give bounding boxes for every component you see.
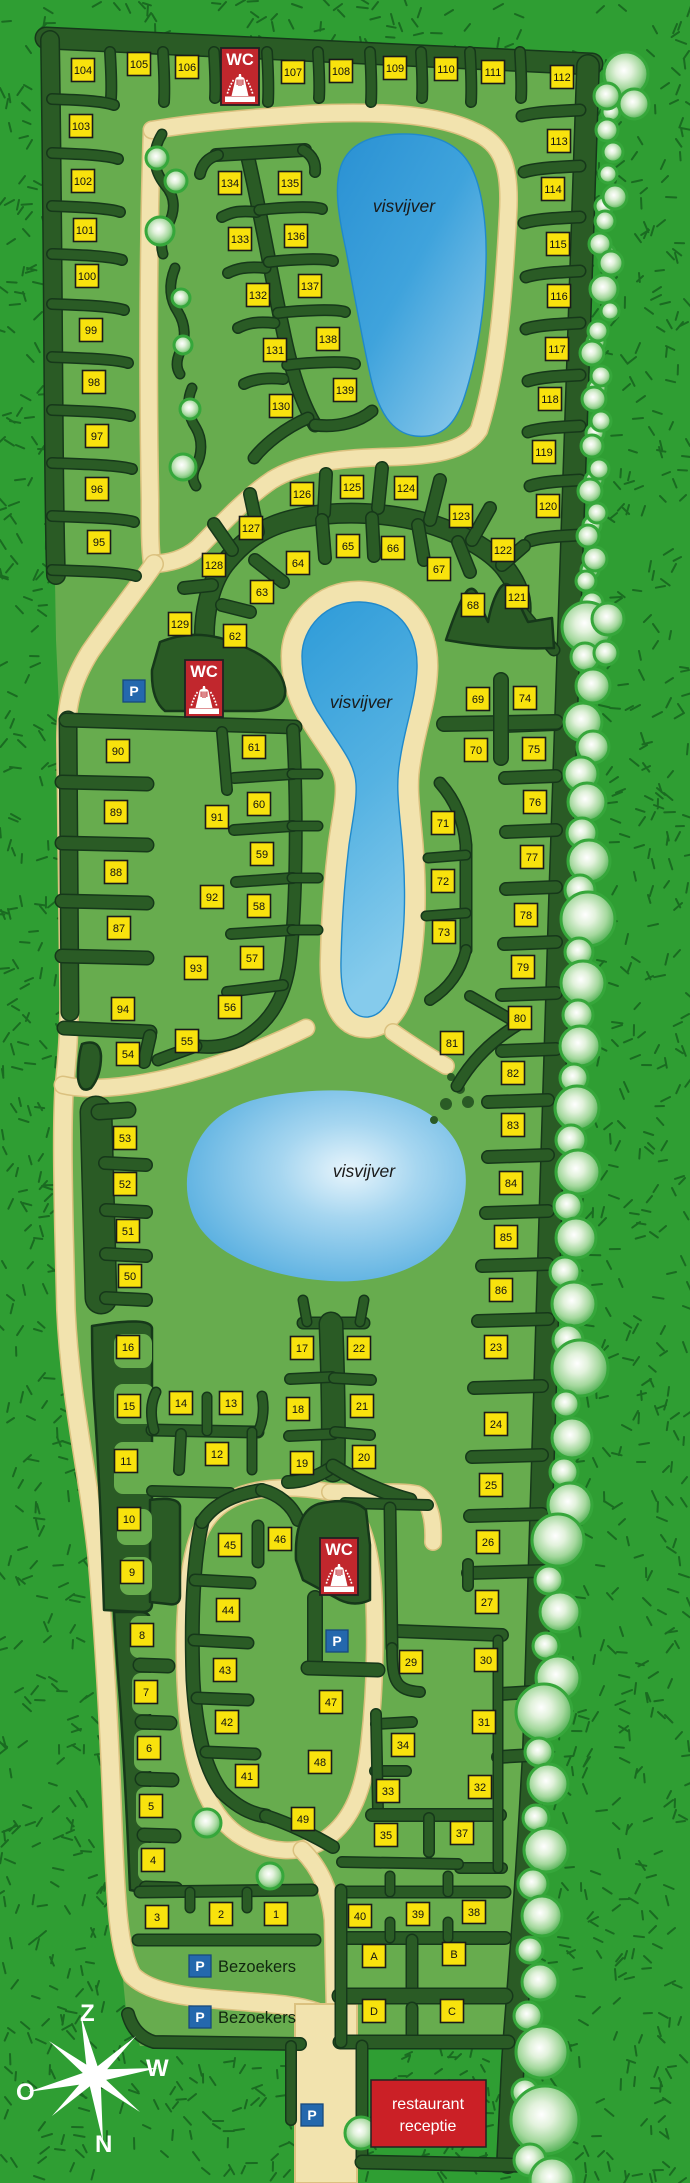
svg-text:80: 80 xyxy=(514,1013,526,1025)
svg-text:122: 122 xyxy=(494,545,512,557)
svg-text:46: 46 xyxy=(274,1534,286,1546)
svg-text:19: 19 xyxy=(296,1458,308,1470)
svg-text:130: 130 xyxy=(272,401,290,413)
svg-text:30: 30 xyxy=(480,1655,492,1667)
svg-text:59: 59 xyxy=(256,849,268,861)
svg-text:95: 95 xyxy=(93,537,105,549)
svg-text:45: 45 xyxy=(224,1540,236,1552)
svg-text:N: N xyxy=(95,2131,112,2158)
svg-text:44: 44 xyxy=(222,1605,234,1617)
svg-text:118: 118 xyxy=(541,394,559,406)
svg-text:94: 94 xyxy=(117,1004,129,1016)
svg-text:31: 31 xyxy=(478,1717,490,1729)
svg-text:90: 90 xyxy=(112,746,124,758)
svg-text:79: 79 xyxy=(517,962,529,974)
svg-text:11: 11 xyxy=(120,1456,131,1468)
svg-text:29: 29 xyxy=(405,1657,417,1669)
svg-text:5: 5 xyxy=(148,1801,154,1813)
svg-text:125: 125 xyxy=(343,482,361,494)
svg-text:138: 138 xyxy=(319,334,337,346)
svg-text:WC: WC xyxy=(325,1541,353,1559)
svg-text:87: 87 xyxy=(113,923,125,935)
svg-text:37: 37 xyxy=(456,1828,468,1840)
svg-text:98: 98 xyxy=(88,377,100,389)
svg-text:67: 67 xyxy=(433,564,445,576)
svg-text:134: 134 xyxy=(221,178,239,190)
svg-text:visvijver: visvijver xyxy=(330,692,393,712)
svg-text:68: 68 xyxy=(467,600,479,612)
svg-text:21: 21 xyxy=(356,1401,368,1413)
svg-text:116: 116 xyxy=(550,291,568,303)
svg-text:102: 102 xyxy=(74,176,92,188)
svg-text:100: 100 xyxy=(78,271,96,283)
svg-text:47: 47 xyxy=(325,1697,337,1709)
svg-text:60: 60 xyxy=(253,799,265,811)
svg-text:C: C xyxy=(448,2006,456,2018)
svg-text:13: 13 xyxy=(225,1398,237,1410)
svg-text:103: 103 xyxy=(72,121,90,133)
svg-text:8: 8 xyxy=(139,1630,145,1642)
svg-text:88: 88 xyxy=(110,867,122,879)
svg-text:77: 77 xyxy=(526,852,538,864)
svg-text:3: 3 xyxy=(154,1912,160,1924)
svg-text:63: 63 xyxy=(256,587,268,599)
svg-text:35: 35 xyxy=(380,1830,392,1842)
svg-text:76: 76 xyxy=(529,797,541,809)
svg-text:55: 55 xyxy=(181,1036,193,1048)
svg-text:81: 81 xyxy=(446,1038,458,1050)
svg-text:72: 72 xyxy=(437,876,449,888)
svg-text:97: 97 xyxy=(91,431,103,443)
svg-text:123: 123 xyxy=(452,511,470,523)
svg-text:66: 66 xyxy=(387,543,399,555)
svg-text:62: 62 xyxy=(229,631,241,643)
svg-text:74: 74 xyxy=(519,693,531,705)
svg-text:110: 110 xyxy=(437,64,455,76)
svg-text:visvijver: visvijver xyxy=(373,196,436,216)
svg-text:112: 112 xyxy=(553,72,571,84)
svg-text:15: 15 xyxy=(123,1401,135,1413)
svg-text:P: P xyxy=(332,1633,341,1649)
svg-text:receptie: receptie xyxy=(400,2118,457,2135)
svg-text:48: 48 xyxy=(314,1757,326,1769)
svg-text:23: 23 xyxy=(490,1342,502,1354)
svg-text:135: 135 xyxy=(281,178,299,190)
svg-text:17: 17 xyxy=(296,1343,308,1355)
svg-text:127: 127 xyxy=(242,523,260,535)
svg-text:10: 10 xyxy=(123,1514,135,1526)
svg-text:121: 121 xyxy=(508,592,526,604)
svg-text:109: 109 xyxy=(386,63,404,75)
svg-text:49: 49 xyxy=(297,1814,309,1826)
svg-text:27: 27 xyxy=(481,1597,493,1609)
svg-text:115: 115 xyxy=(549,239,567,251)
svg-text:119: 119 xyxy=(535,447,553,459)
svg-text:69: 69 xyxy=(472,694,484,706)
svg-text:136: 136 xyxy=(287,231,305,243)
svg-text:22: 22 xyxy=(353,1343,365,1355)
svg-text:113: 113 xyxy=(550,136,568,148)
svg-text:1: 1 xyxy=(273,1909,279,1921)
svg-text:82: 82 xyxy=(507,1068,519,1080)
svg-text:93: 93 xyxy=(190,963,202,975)
svg-text:WC: WC xyxy=(226,51,254,69)
svg-text:91: 91 xyxy=(211,812,223,824)
svg-text:65: 65 xyxy=(342,541,354,553)
svg-text:Bezoekers: Bezoekers xyxy=(218,1958,296,1976)
svg-text:12: 12 xyxy=(211,1449,223,1461)
svg-text:75: 75 xyxy=(528,744,540,756)
svg-text:92: 92 xyxy=(206,892,218,904)
svg-text:83: 83 xyxy=(507,1120,519,1132)
svg-text:106: 106 xyxy=(178,62,196,74)
svg-text:2: 2 xyxy=(218,1909,224,1921)
svg-text:96: 96 xyxy=(91,484,103,496)
svg-text:39: 39 xyxy=(412,1909,424,1921)
svg-text:104: 104 xyxy=(74,65,92,77)
svg-text:99: 99 xyxy=(85,325,97,337)
svg-text:54: 54 xyxy=(122,1049,134,1061)
svg-text:128: 128 xyxy=(205,560,223,572)
svg-text:25: 25 xyxy=(485,1480,497,1492)
svg-text:73: 73 xyxy=(438,927,450,939)
svg-text:Z: Z xyxy=(80,2000,95,2027)
svg-text:70: 70 xyxy=(470,745,482,757)
svg-text:32: 32 xyxy=(474,1782,486,1794)
svg-text:26: 26 xyxy=(482,1537,494,1549)
svg-text:64: 64 xyxy=(292,558,304,570)
svg-text:P: P xyxy=(129,683,138,699)
svg-text:57: 57 xyxy=(246,953,258,965)
svg-text:117: 117 xyxy=(548,344,566,356)
svg-text:105: 105 xyxy=(130,59,148,71)
svg-text:43: 43 xyxy=(219,1665,231,1677)
svg-text:WC: WC xyxy=(190,663,218,681)
svg-text:53: 53 xyxy=(119,1133,131,1145)
svg-text:108: 108 xyxy=(332,66,350,78)
svg-text:120: 120 xyxy=(539,501,557,513)
svg-text:restaurant: restaurant xyxy=(392,2096,465,2113)
svg-text:9: 9 xyxy=(129,1567,135,1579)
svg-text:132: 132 xyxy=(249,290,267,302)
svg-text:6: 6 xyxy=(146,1743,152,1755)
svg-text:Bezoekers: Bezoekers xyxy=(218,2009,296,2027)
svg-text:P: P xyxy=(307,2107,316,2123)
svg-text:71: 71 xyxy=(437,818,449,830)
svg-text:126: 126 xyxy=(293,489,311,501)
svg-text:51: 51 xyxy=(122,1226,134,1238)
svg-text:129: 129 xyxy=(171,619,189,631)
svg-text:114: 114 xyxy=(544,184,562,196)
svg-text:18: 18 xyxy=(292,1404,304,1416)
svg-text:89: 89 xyxy=(110,807,122,819)
svg-text:33: 33 xyxy=(382,1786,394,1798)
svg-text:133: 133 xyxy=(231,234,249,246)
svg-text:38: 38 xyxy=(468,1907,480,1919)
svg-text:34: 34 xyxy=(397,1740,409,1752)
svg-text:D: D xyxy=(370,2006,378,2018)
svg-text:85: 85 xyxy=(500,1232,512,1244)
svg-text:111: 111 xyxy=(485,67,502,79)
svg-text:16: 16 xyxy=(122,1342,134,1354)
svg-text:131: 131 xyxy=(266,345,284,357)
svg-text:P: P xyxy=(195,1958,204,1974)
svg-text:P: P xyxy=(195,2009,204,2025)
svg-text:86: 86 xyxy=(495,1285,507,1297)
svg-text:61: 61 xyxy=(248,742,260,754)
svg-text:40: 40 xyxy=(354,1911,366,1923)
svg-text:42: 42 xyxy=(221,1717,233,1729)
svg-text:56: 56 xyxy=(224,1002,236,1014)
svg-text:A: A xyxy=(370,1951,378,1963)
svg-text:O: O xyxy=(16,2079,35,2106)
svg-text:41: 41 xyxy=(241,1771,253,1783)
svg-text:84: 84 xyxy=(505,1178,517,1190)
svg-text:139: 139 xyxy=(336,385,354,397)
svg-text:20: 20 xyxy=(358,1452,370,1464)
svg-text:W: W xyxy=(146,2055,169,2082)
svg-text:124: 124 xyxy=(397,483,415,495)
svg-text:107: 107 xyxy=(284,67,302,79)
svg-text:4: 4 xyxy=(150,1855,156,1867)
svg-text:78: 78 xyxy=(520,910,532,922)
svg-text:52: 52 xyxy=(119,1179,131,1191)
svg-text:58: 58 xyxy=(253,901,265,913)
svg-text:101: 101 xyxy=(76,225,94,237)
svg-text:14: 14 xyxy=(175,1398,187,1410)
svg-text:B: B xyxy=(450,1949,457,1961)
svg-text:24: 24 xyxy=(490,1419,502,1431)
svg-text:visvijver: visvijver xyxy=(333,1161,396,1181)
svg-text:137: 137 xyxy=(301,281,319,293)
svg-text:7: 7 xyxy=(143,1687,149,1699)
svg-text:50: 50 xyxy=(124,1271,136,1283)
